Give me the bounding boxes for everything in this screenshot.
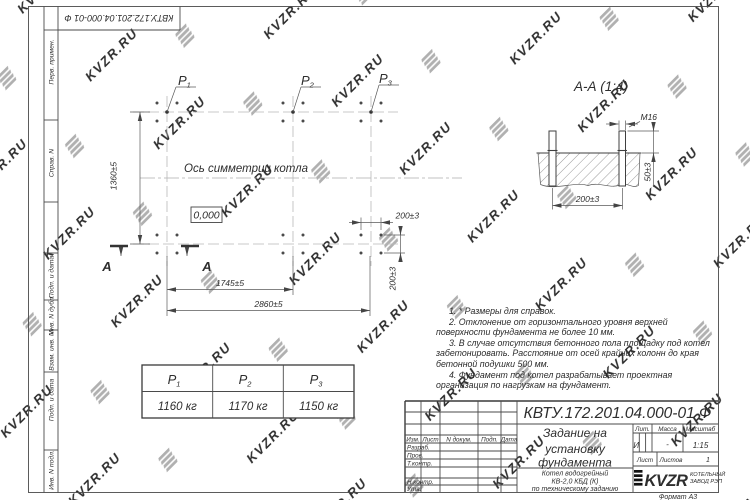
sheet-header: Лист xyxy=(636,457,653,464)
doc-name-line3: фундамента xyxy=(538,456,612,470)
row-razrab: Разраб. xyxy=(407,444,430,452)
product-line2: КВ-2,0 КБД (К) xyxy=(552,479,599,486)
svg-text:200±3: 200±3 xyxy=(395,211,420,221)
symmetry-axis-label: Ось симметрии котла xyxy=(184,163,308,175)
row-nkontr: Н.контр. xyxy=(407,479,434,486)
lit-header: Лит. xyxy=(634,426,650,433)
lit-value: И xyxy=(633,441,639,450)
svg-text:0,000: 0,000 xyxy=(193,210,219,222)
col-podp: Подп. xyxy=(481,436,498,444)
mass-value: - xyxy=(666,440,669,449)
col-list: Лист xyxy=(421,437,438,444)
margin-label-podp-data-2: Подп. и дата xyxy=(48,379,56,422)
col-izm: Изм. xyxy=(406,437,419,444)
row-prov: Пров. xyxy=(407,453,424,460)
section-title: А-А (1:4) xyxy=(573,79,628,94)
elevation-mark: 0,000 xyxy=(191,207,222,223)
col-ndokum: N докум. xyxy=(446,436,471,444)
scale-value: 1:15 xyxy=(693,441,709,450)
drawing-page: KVZR.RU КВТУ.172.201. xyxy=(0,0,750,500)
logo-caption-line2: ЗАВОД РЭП xyxy=(690,479,723,485)
col-data: Дата xyxy=(500,437,518,444)
margin-label-podp-data-1: Подп. и дата xyxy=(48,256,56,299)
doc-name-line1: Задание на xyxy=(543,426,607,440)
row-utv: Утв. xyxy=(406,486,421,493)
table-value-p1: 1160 кг xyxy=(158,401,197,413)
svg-text:М16: М16 xyxy=(641,112,658,122)
margin-label-sprav-n: Справ. N xyxy=(49,149,56,178)
section-letter-2: А xyxy=(201,259,211,274)
scale-header: Масштаб xyxy=(686,425,716,433)
load-table: P1 P2 P3 1160 кг 1170 кг 1150 кг xyxy=(142,365,354,418)
margin-label-vzam-inv: Взам. инв. N xyxy=(49,331,56,371)
logo-caption-line1: КОТЕЛЬНЫЙ xyxy=(690,470,725,478)
note-4: 4. Фундамент под котел разрабатывает про… xyxy=(436,370,718,391)
table-value-p3: 1150 кг xyxy=(299,401,338,413)
sheets-header: Листов xyxy=(659,457,684,464)
note-2: 2. Отклонение от горизонтального уровня … xyxy=(436,317,718,338)
logo-text: KVZR xyxy=(645,472,689,490)
note-3: 3. В случае отсутствия бетонного пола пл… xyxy=(436,338,718,370)
table-value-p2: 1170 кг xyxy=(228,401,267,413)
drawing-sheet: KVZR.RU КВТУ.172.201. xyxy=(0,0,750,500)
product-line1: Котел водогрейный xyxy=(542,470,609,478)
product-line3: по техническому заданию xyxy=(532,485,619,493)
svg-text:50±3: 50±3 xyxy=(643,162,653,181)
mass-header: Масса xyxy=(658,426,677,433)
svg-text:2860±5: 2860±5 xyxy=(253,299,283,309)
sheets-value: 1 xyxy=(706,457,710,464)
svg-text:200±3: 200±3 xyxy=(575,194,600,204)
designation-main: КВТУ.172.201.04.000-01 Ф xyxy=(524,405,712,422)
section-letter-1: А xyxy=(101,259,111,274)
doc-name-line2: установку xyxy=(544,442,606,456)
margin-label-inv-podl: Инв. N подл. xyxy=(48,450,56,490)
margin-label-perv-primen: Перв. примен. xyxy=(49,39,56,84)
note-1: 1. * Размеры для справок. xyxy=(436,306,718,317)
designation-top: КВТУ.172.201.04.000-01 Ф xyxy=(65,13,174,23)
row-tkontr: Т.контр. xyxy=(407,461,432,468)
margin-label-inv-dubl: Инв. N дубл. xyxy=(48,295,56,334)
format-label: Формат А3 xyxy=(659,494,697,500)
svg-text:1745±5: 1745±5 xyxy=(216,278,245,288)
watermark-layer xyxy=(0,0,750,500)
svg-text:200±3: 200±3 xyxy=(388,266,398,291)
technical-notes: 1. * Размеры для справок. 2. Отклонение … xyxy=(436,306,718,391)
svg-text:1360±5: 1360±5 xyxy=(109,162,119,191)
